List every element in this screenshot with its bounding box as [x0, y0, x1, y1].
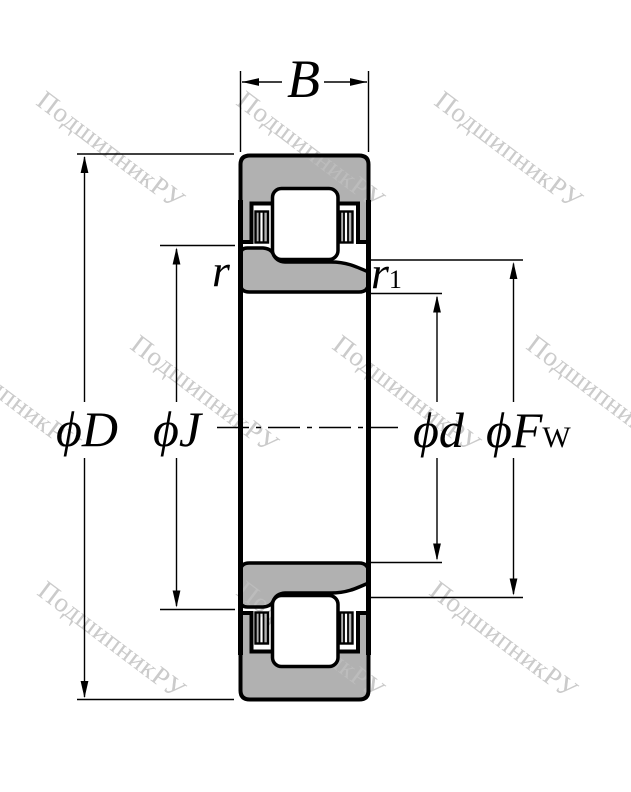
- arrowhead-up: [433, 296, 441, 313]
- bearing-cross-section-diagram: ПодшипникРУ ПодшипникРУ ПодшипникРУ Подш…: [0, 0, 631, 792]
- label-outer-chamfer-r: r: [212, 245, 231, 296]
- label-flange-diameter: ϕJ: [153, 401, 204, 457]
- label-bore-diameter: ϕd: [413, 402, 465, 458]
- arrowhead-up: [173, 248, 181, 265]
- arrowhead-down: [81, 681, 89, 698]
- arrowhead-down: [510, 579, 518, 596]
- arrowhead-up: [81, 156, 89, 173]
- label-outer-diameter: ϕD: [56, 401, 118, 457]
- bearing-drawing-page: ПодшипникРУ ПодшипникРУ ПодшипникРУ Подш…: [0, 0, 631, 792]
- label-width: B: [287, 49, 320, 109]
- arrowhead-down: [433, 544, 441, 561]
- arrowhead-down: [173, 591, 181, 608]
- arrowhead-up: [510, 262, 518, 279]
- arrowhead-right: [350, 78, 367, 86]
- label-raceway-diameter: ϕFW: [486, 402, 571, 458]
- label-inner-chamfer-r1: r1: [371, 247, 402, 298]
